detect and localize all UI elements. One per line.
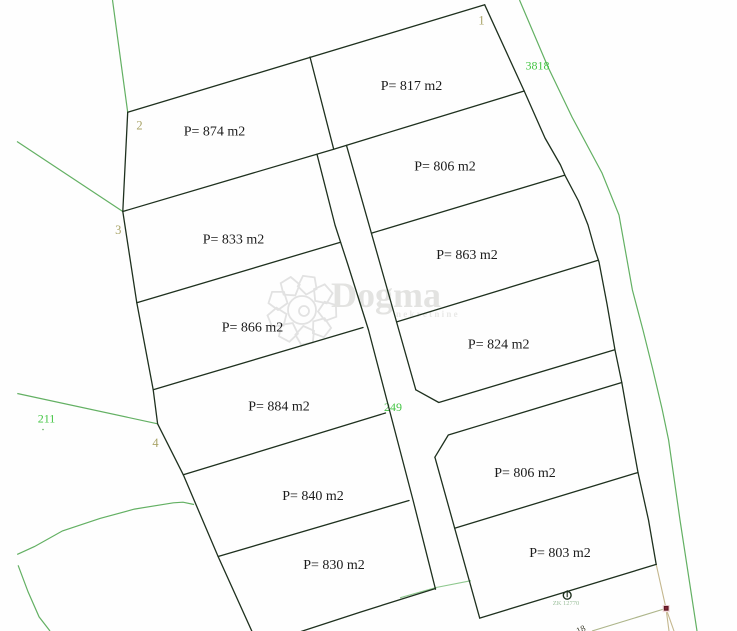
svg-text:P= 840 m2: P= 840 m2 xyxy=(282,489,344,504)
svg-text:ZK 12770: ZK 12770 xyxy=(553,600,580,607)
svg-text:211: 211 xyxy=(38,412,56,426)
svg-text:2: 2 xyxy=(136,119,142,133)
svg-text:n e k r e t n i n e: n e k r e t n i n e xyxy=(396,309,458,319)
svg-text:P= 830 m2: P= 830 m2 xyxy=(303,558,365,573)
svg-text:P= 874 m2: P= 874 m2 xyxy=(184,125,246,140)
svg-text:P= 863 m2: P= 863 m2 xyxy=(436,248,498,263)
svg-text:3818: 3818 xyxy=(526,59,550,73)
svg-text:P= 806 m2: P= 806 m2 xyxy=(494,466,556,481)
svg-text:1: 1 xyxy=(478,14,484,28)
svg-text:4: 4 xyxy=(152,436,159,450)
svg-text:3: 3 xyxy=(115,223,121,237)
svg-text:249: 249 xyxy=(384,400,402,414)
svg-text:P= 866 m2: P= 866 m2 xyxy=(222,321,284,336)
svg-text:P= 884 m2: P= 884 m2 xyxy=(248,400,310,415)
svg-text:P= 833 m2: P= 833 m2 xyxy=(203,233,265,248)
svg-text:P= 824 m2: P= 824 m2 xyxy=(468,338,530,353)
svg-text:P= 806 m2: P= 806 m2 xyxy=(414,159,476,174)
svg-text:P= 817 m2: P= 817 m2 xyxy=(381,79,443,94)
svg-text:P= 803 m2: P= 803 m2 xyxy=(529,546,591,561)
